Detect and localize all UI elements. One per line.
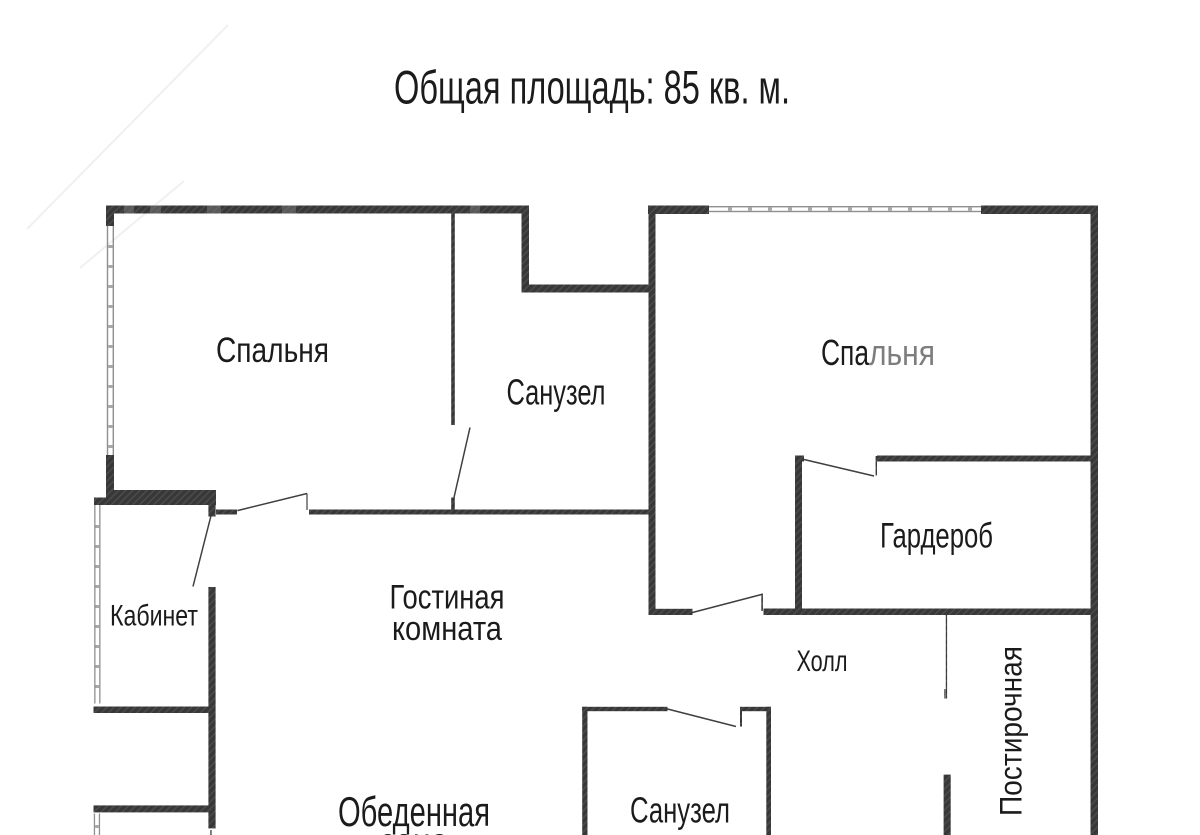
svg-text:Санузел: Санузел xyxy=(630,790,730,831)
svg-text:Спа: Спа xyxy=(821,332,870,373)
svg-text:Санузел: Санузел xyxy=(507,372,606,413)
svg-text:Постирочная: Постирочная xyxy=(993,646,1029,816)
svg-text:Спальня: Спальня xyxy=(216,331,329,370)
svg-text:Общая площадь: 85 кв. м.: Общая площадь: 85 кв. м. xyxy=(394,61,790,114)
svg-text:Кабинет: Кабинет xyxy=(110,600,198,633)
svg-text:Гардероб: Гардероб xyxy=(880,517,993,556)
svg-text:Холл: Холл xyxy=(797,645,848,678)
svg-text:комната: комната xyxy=(392,610,502,648)
svg-text:льня: льня xyxy=(869,332,935,373)
svg-text:зона: зона xyxy=(381,819,449,835)
